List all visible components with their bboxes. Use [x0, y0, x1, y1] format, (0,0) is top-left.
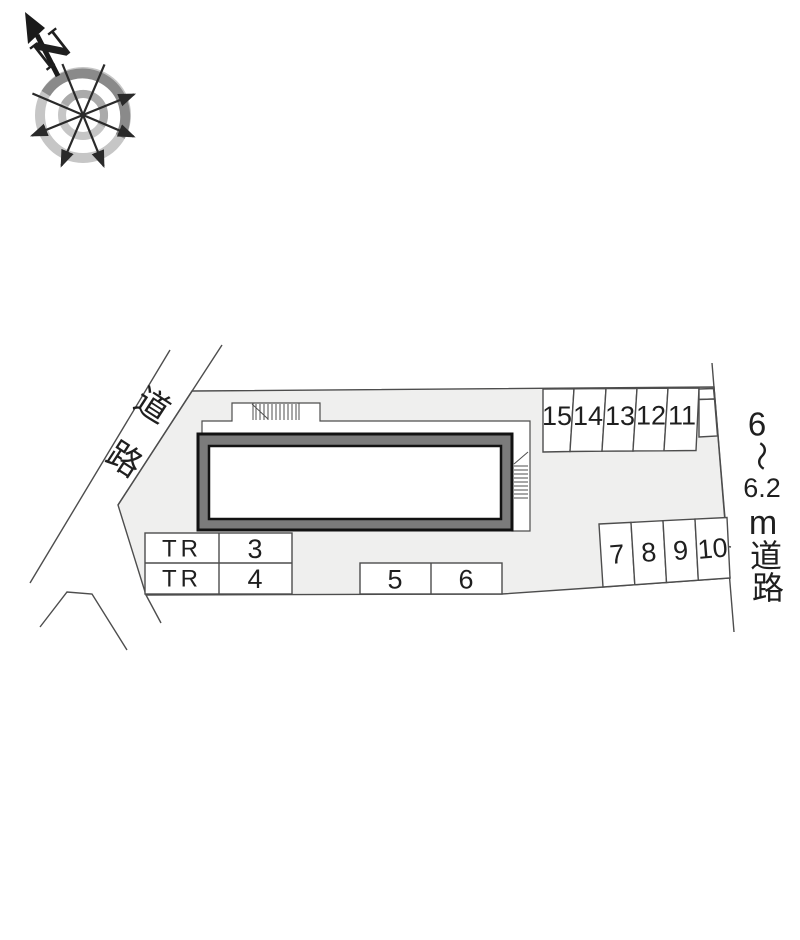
boundary-step — [699, 389, 715, 400]
road-width-char: 6.2 — [743, 473, 781, 503]
parking-space-number: 14 — [573, 401, 603, 431]
parking-space-number: 7 — [608, 539, 625, 570]
site-plan-drawing: N 道 路 — [0, 0, 800, 940]
road-width-char: 〜 — [744, 441, 777, 471]
parking-row-bottom-right: 7 8 9 10 — [599, 518, 730, 588]
compass-rose: N — [23, 12, 134, 166]
road-width-char: 路 — [752, 570, 784, 606]
parking-space-number: 4 — [247, 564, 262, 594]
parking-space-number: 9 — [672, 535, 689, 566]
parking-space-number: 12 — [636, 401, 666, 431]
road-label-char: 道 — [127, 381, 176, 431]
parking-row-top: 15 14 13 12 11 — [542, 388, 718, 452]
parking-space-number: 10 — [696, 533, 728, 565]
building — [198, 434, 512, 530]
parking-space-number: 8 — [640, 537, 657, 568]
parking-space-number: 13 — [605, 401, 635, 431]
parking-space-number: 6 — [458, 565, 473, 595]
boundary-step — [699, 399, 718, 437]
road-edge — [146, 595, 161, 623]
road-width-char: 6 — [748, 406, 766, 443]
road-width-label: 6 〜 6.2 m 道 路 — [743, 406, 784, 607]
trunk-room-label: TR — [162, 566, 202, 593]
compass-arrows — [32, 64, 134, 166]
trunk-room-table: TR 3 TR 4 — [145, 533, 292, 594]
road-width-char: m — [749, 504, 777, 542]
parking-space-number: 3 — [247, 534, 262, 564]
trunk-room-label: TR — [162, 536, 202, 563]
parking-space-number: 15 — [542, 401, 572, 431]
parking-space-number: 11 — [668, 400, 696, 430]
road-bend — [40, 592, 127, 650]
building-interior — [209, 446, 501, 519]
parking-space-number: 5 — [387, 565, 402, 595]
road-width-char: 道 — [750, 538, 782, 574]
site-plan-canvas: N 道 路 — [0, 0, 800, 940]
parking-row-middle: 5 6 — [360, 563, 502, 595]
